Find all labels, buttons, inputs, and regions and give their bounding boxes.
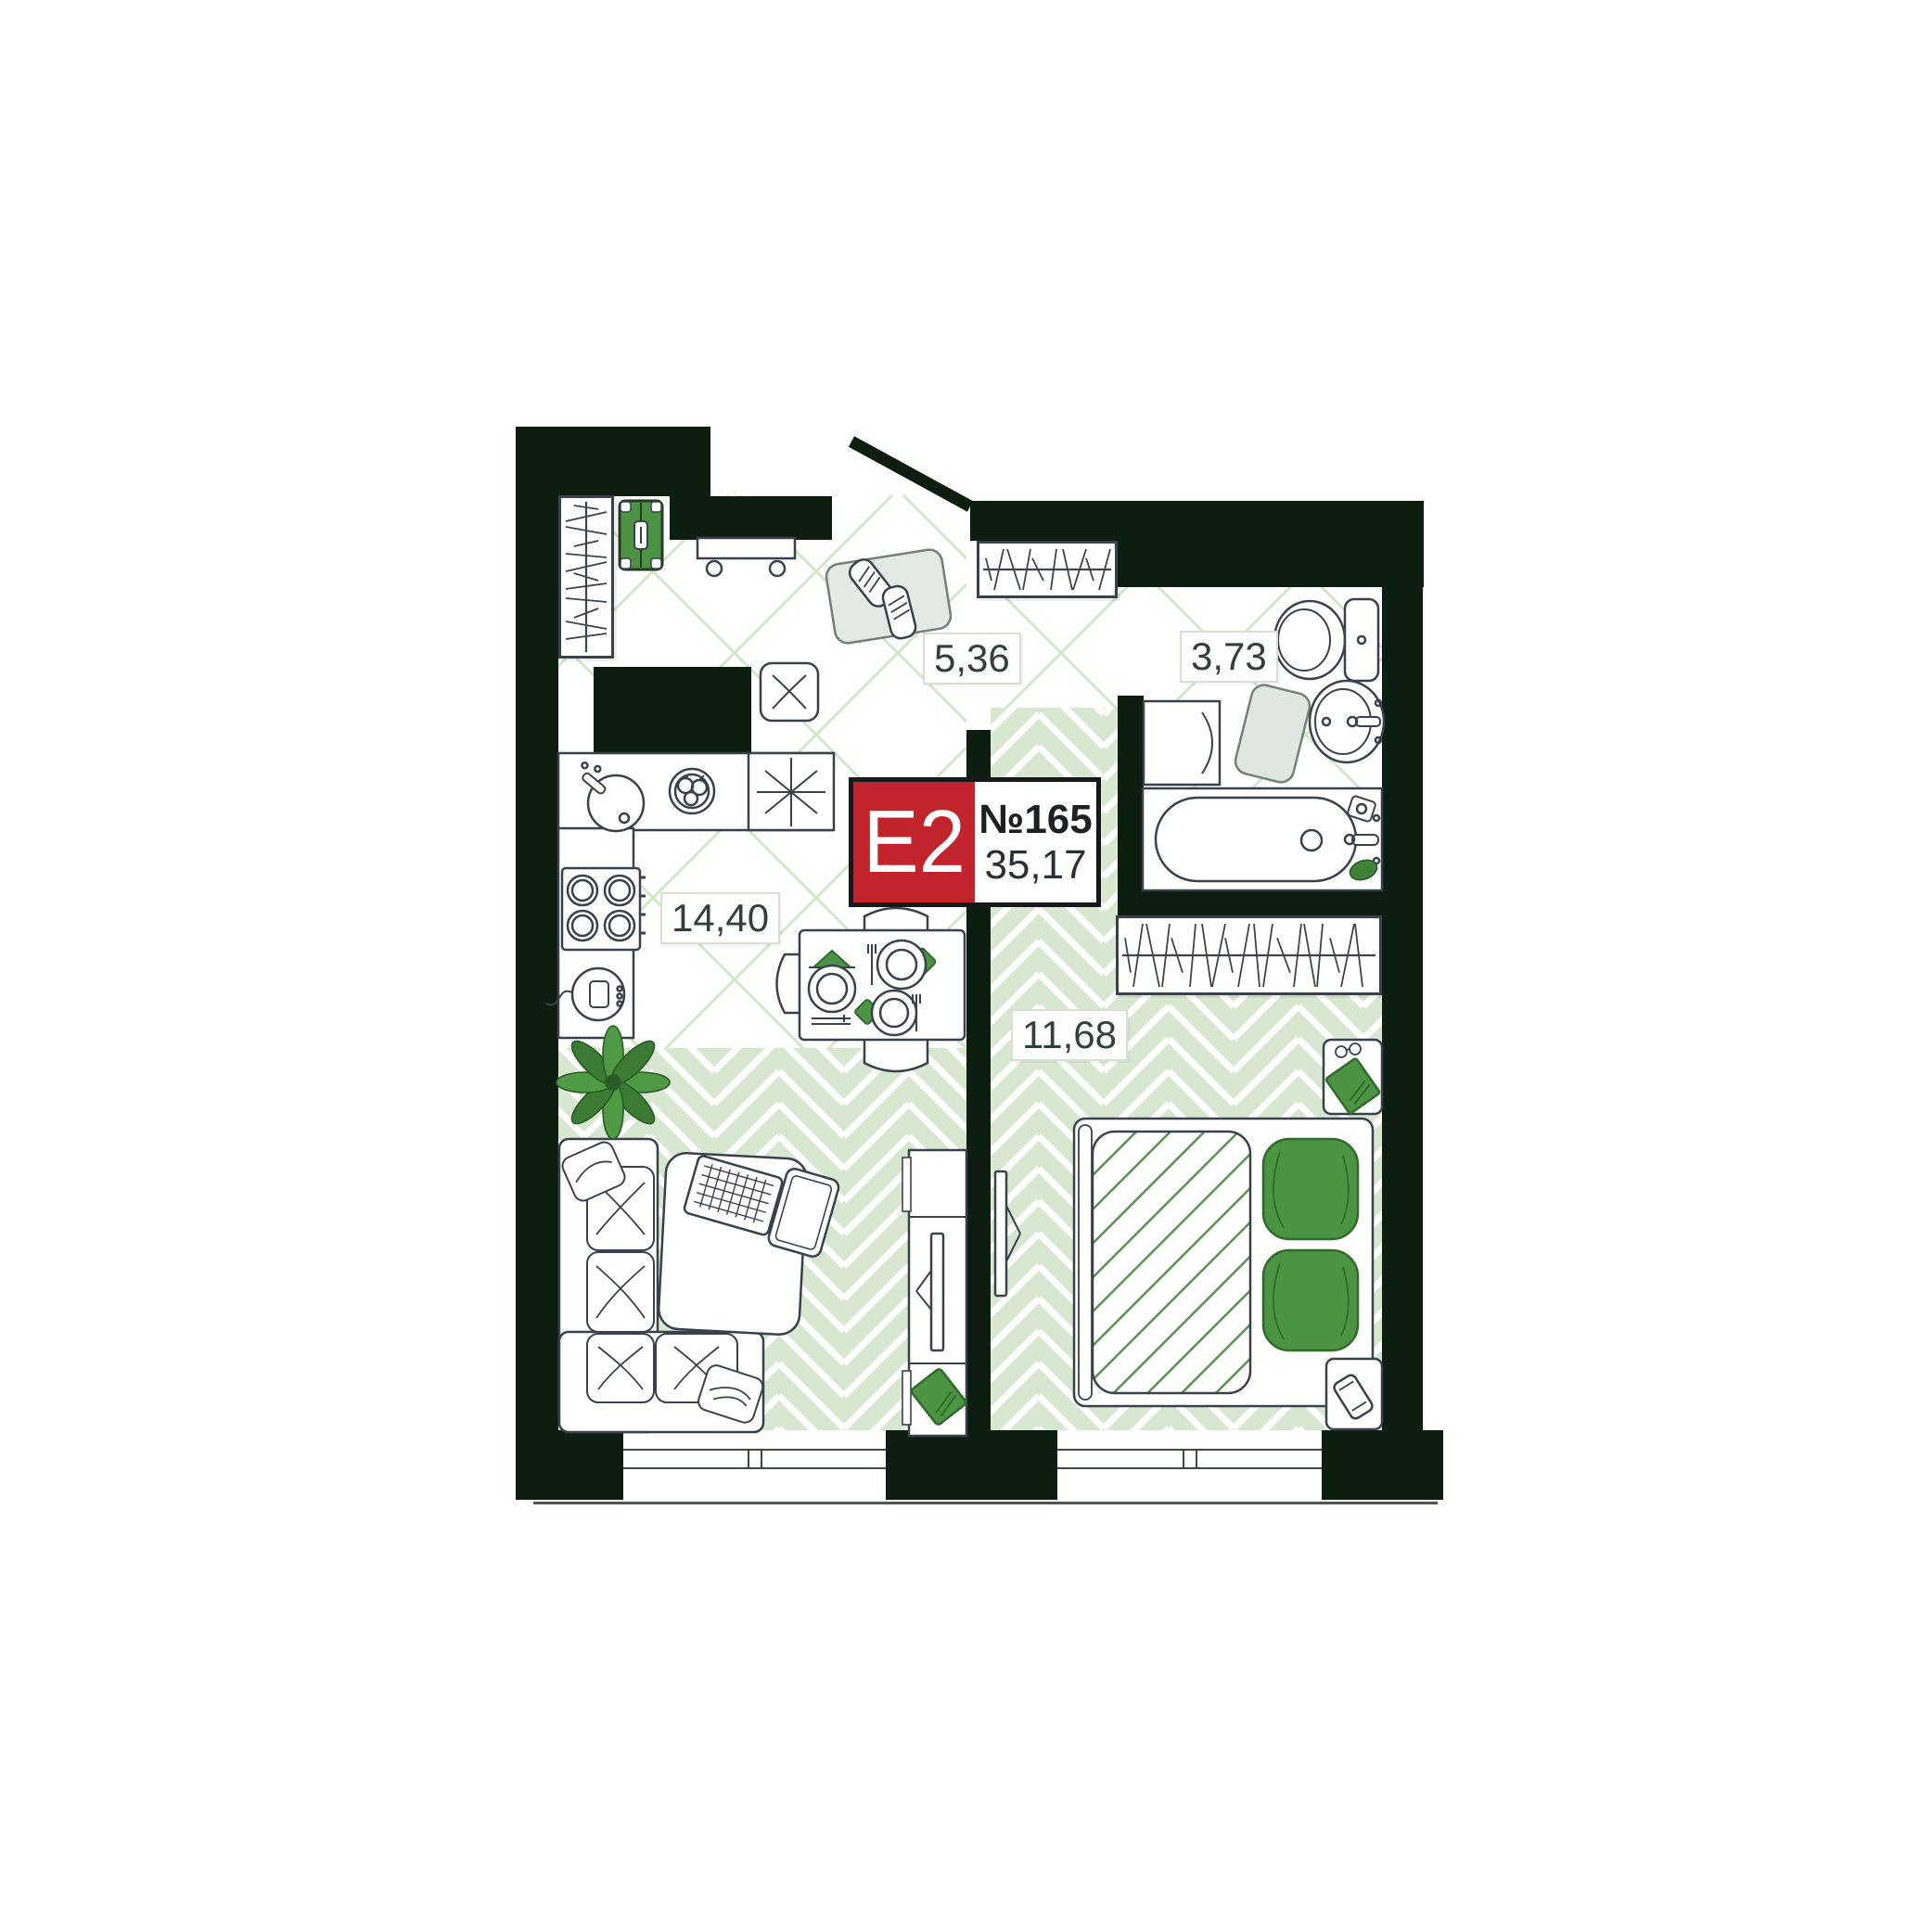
bathtub-icon [1143, 788, 1382, 890]
tv-living-icon [931, 1234, 943, 1350]
dining-chair-top [864, 908, 928, 932]
nightstand-bottom [1326, 1359, 1382, 1429]
suitcase-icon [620, 501, 662, 569]
bedroom-area-value: 11,68 [1022, 1015, 1117, 1056]
hallway-area-value: 5,36 [934, 638, 1010, 679]
coffee-table [658, 1143, 840, 1336]
unit-total-area-text: 35,17 [984, 842, 1086, 888]
hallway-bench [697, 538, 795, 576]
dining-chair-bottom [864, 1038, 928, 1071]
area-label-kitchen-living: 14,40 [660, 892, 780, 944]
dining-chair-left [777, 954, 802, 1013]
tv-bedroom-icon [995, 1171, 1020, 1296]
floorplan-canvas: 5,36 3,73 14,40 11,68 E2 №165 35,17 [0, 0, 1932, 1932]
bathroom-sink-icon [1310, 681, 1384, 762]
furniture-layer [0, 0, 1932, 1932]
area-label-bedroom: 11,68 [1011, 1009, 1128, 1061]
plant-icon [557, 1026, 670, 1139]
layout-code-text: E2 [863, 798, 965, 887]
bed-pillow-icon [1263, 1250, 1358, 1350]
nightstand-top [1324, 1040, 1382, 1114]
hallway-stool [761, 663, 818, 721]
duvet [1093, 1132, 1250, 1393]
entrance-door-leaf-icon [851, 441, 970, 506]
kitchen-living-area-value: 14,40 [672, 898, 769, 939]
washing-machine-icon [1144, 701, 1220, 785]
unit-number-text: №165 [979, 797, 1092, 842]
stove-icon [562, 868, 646, 950]
fruit-plate-icon [670, 769, 714, 813]
bathroom-area-value: 3,73 [1191, 636, 1267, 677]
bed-pillow-icon [1263, 1139, 1358, 1239]
unit-badge: E2 №165 35,17 [849, 777, 1101, 907]
layout-code-badge: E2 [853, 782, 975, 902]
tv-console [902, 1150, 967, 1436]
dining-set [777, 908, 966, 1071]
area-label-bathroom: 3,73 [1180, 631, 1278, 683]
toilet-icon [1274, 599, 1378, 681]
bath-mat [1233, 683, 1312, 786]
area-label-hallway: 5,36 [923, 633, 1021, 685]
unit-info: №165 35,17 [975, 782, 1096, 902]
